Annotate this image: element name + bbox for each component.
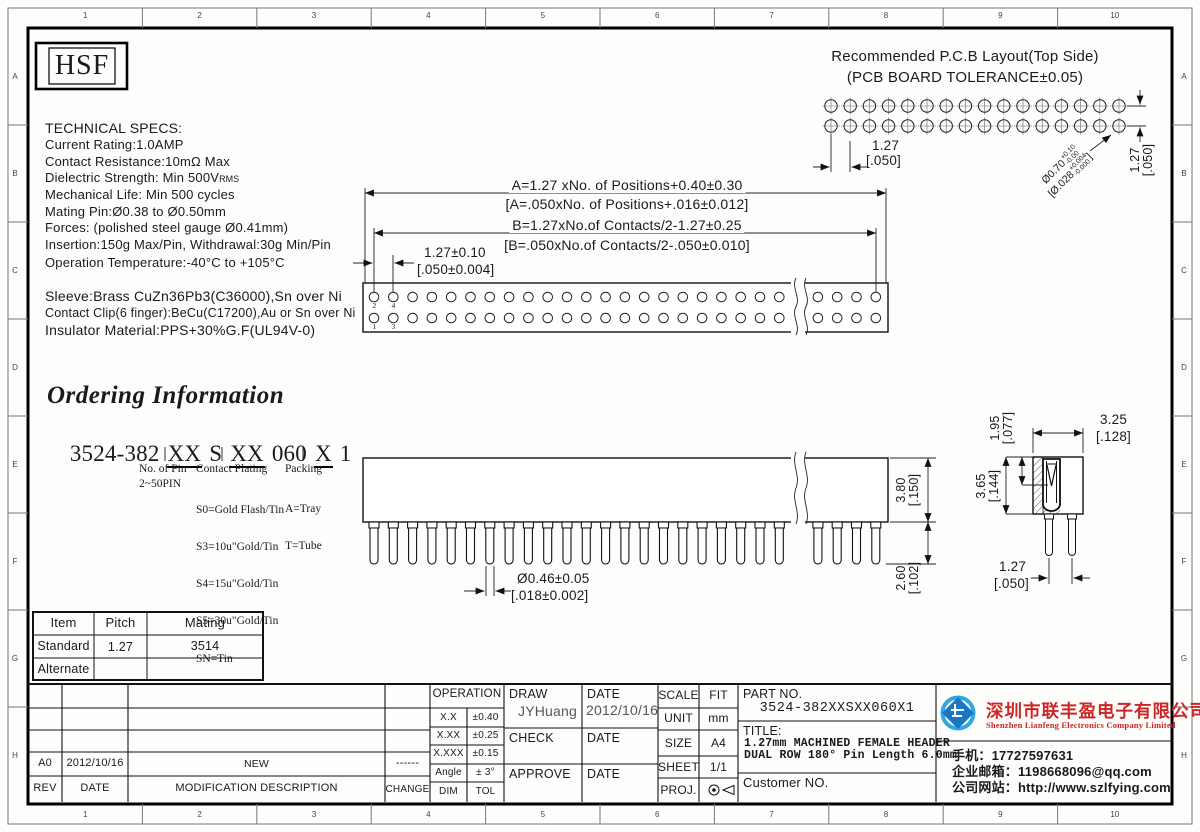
dim-body-width-mm: 3.25 — [1100, 412, 1127, 428]
dim-formula-a-mm: A=1.27 xNo. of Positions+0.40±0.30 — [509, 177, 746, 193]
mating-cell: Alternate — [33, 662, 94, 676]
company-name-en: Shenzhen Lianfeng Electronics Company Li… — [986, 721, 1176, 731]
tol-footer-dim: DIM — [430, 786, 467, 798]
spec-line: Current Rating:1.0AMP — [45, 138, 184, 153]
zone-label: 8 — [881, 810, 891, 819]
dim-pin-dia-in: [.018±0.002] — [511, 588, 588, 604]
zone-label: 6 — [652, 810, 662, 819]
draw-date: 2012/10/16 — [586, 702, 658, 718]
tol-dim: Angle — [430, 767, 467, 779]
zone-label: F — [10, 557, 20, 566]
top-view-break — [791, 278, 807, 335]
draw-name: JYHuang — [518, 703, 577, 719]
rev-entry-date: 2012/10/16 — [62, 757, 128, 770]
pcb-layout-subtitle: (PCB BOARD TOLERANCE±0.05) — [795, 69, 1135, 86]
mating-header-item: Item — [33, 616, 94, 631]
company-logo-icon — [942, 697, 974, 729]
scale-value: FIT — [699, 689, 738, 703]
zone-label: 7 — [767, 11, 777, 20]
sheet-value: 1/1 — [699, 761, 738, 775]
dim-formula-b-mm: B=1.27xNo.of Contacts/2-1.27±0.25 — [509, 217, 744, 233]
spec-line: Mating Pin:Ø0.38 to Ø0.50mm — [45, 205, 226, 220]
zone-label: B — [1179, 169, 1189, 178]
spec-line: Forces: (polished steel gauge Ø0.41mm) — [45, 221, 288, 236]
dim-pitch-mm: 1.27±0.10 — [424, 245, 486, 261]
ordering-pin-range: 2~50PIN — [139, 478, 181, 490]
dim-body-height: 3.80[.150] — [895, 464, 921, 516]
dim-pitch-in: [.050±0.004] — [417, 262, 494, 278]
zone-label: C — [1179, 266, 1189, 275]
part-no-value: 3524-382XXSXX060X1 — [738, 701, 936, 717]
rev-header: CHANGE — [385, 784, 430, 796]
check-label: CHECK — [509, 731, 554, 745]
zone-label: B — [10, 169, 20, 178]
tol-footer-tol: TOL — [467, 786, 504, 798]
zone-label: E — [10, 460, 20, 469]
spec-line: Contact Resistance:10mΩ Max — [45, 155, 230, 170]
mating-header-mating: Mating — [147, 616, 263, 631]
dim-formula-a-in: [A=.050xNo. of Positions+.016±0.012] — [503, 196, 752, 212]
zone-label: 6 — [652, 11, 662, 20]
zone-label: 10 — [1110, 810, 1120, 819]
front-view-break — [791, 452, 807, 524]
zone-label: 1 — [80, 810, 90, 819]
part-title-line2: DUAL ROW 180° Pin Length 6.0mm — [744, 749, 957, 762]
dim-insulator-height: 3.65[.144] — [975, 461, 1001, 511]
plating-option: SN=Tin — [196, 653, 284, 665]
size-label: SIZE — [658, 737, 699, 751]
front-view-pins — [369, 522, 881, 564]
pin-number: 3 — [390, 323, 397, 332]
pcb-pitch-mm: 1.27 — [872, 138, 899, 154]
zone-label: H — [1179, 751, 1189, 760]
mating-header-pitch: Pitch — [94, 616, 147, 631]
pcb-layout-title: Recommended P.C.B Layout(Top Side) — [795, 48, 1135, 65]
customer-no-label: Customer NO. — [743, 776, 828, 791]
zone-label: 3 — [309, 810, 319, 819]
tol-dim: X.X — [430, 712, 467, 724]
pcb-pitch-in: [.050] — [866, 153, 901, 169]
tol-val: ±0.40 — [467, 712, 504, 724]
material-line: Insulator Material:PPS+30%G.F(UL94V-0) — [45, 322, 315, 338]
sheet-label: SHEET — [658, 761, 699, 775]
spec-line: Insertion:150g Max/Pin, Withdrawal:30g M… — [45, 238, 331, 253]
drawing-sheet: HSF TECHNICAL SPECS: Current Rating:1.0A… — [0, 0, 1200, 832]
spec-line: Operation Temperature:-40°C to +105°C — [45, 256, 285, 271]
packing-option: T=Tube — [285, 540, 322, 552]
scale-label: SCALE — [658, 689, 699, 703]
mating-cell: Standard — [33, 639, 94, 653]
dim-pin-length: 2.60[.102] — [895, 552, 921, 604]
spec-line: Dielectric Strength: Min 500VRMS — [45, 171, 239, 186]
proj-label: PROJ. — [658, 784, 699, 798]
zone-label: D — [10, 363, 20, 372]
zone-label: G — [10, 654, 20, 663]
packing-option: A=Tray — [285, 503, 322, 515]
zone-label: G — [1179, 654, 1189, 663]
unit-label: UNIT — [658, 712, 699, 726]
zone-label: 2 — [195, 810, 205, 819]
date-label: DATE — [587, 767, 620, 781]
material-line: Sleeve:Brass CuZn36Pb3(C36000),Sn over N… — [45, 288, 342, 304]
mating-cell: 3514 — [147, 639, 263, 653]
zone-label: 2 — [195, 11, 205, 20]
ordering-packing-title: Packing — [285, 463, 322, 475]
specs-title: TECHNICAL SPECS: — [45, 120, 182, 136]
section-view — [1033, 457, 1083, 556]
ordering-title: Ordering Information — [47, 382, 284, 411]
dim-contact-depth: 1.95[.077] — [989, 403, 1015, 453]
tol-val: ± 3° — [467, 767, 504, 779]
tol-val: ±0.25 — [467, 730, 504, 742]
zone-label: 4 — [423, 810, 433, 819]
ordering-plating-options: S0=Gold Flash/Tin S3=10u"Gold/Tin S4=15u… — [196, 479, 284, 690]
dim-sec-pitch-in: [.050] — [994, 576, 1029, 592]
rev-header: DATE — [62, 782, 128, 795]
zone-label: 7 — [767, 810, 777, 819]
dim-body-width-in: [.128] — [1096, 429, 1131, 445]
plating-option: S4=15u"Gold/Tin — [196, 578, 284, 590]
mating-cell: 1.27 — [94, 640, 147, 654]
pcb-hole-pattern — [822, 98, 1128, 135]
zone-label: C — [10, 266, 20, 275]
company-email: 企业邮箱：1198668096@qq.com — [952, 765, 1152, 780]
pcb-row-pitch-dim: 1.27[.050] — [1129, 137, 1155, 183]
company-phone: 手机：17727597631 — [952, 749, 1073, 764]
dim-formula-b-in: [B=.050xNo.of Contacts/2-.050±0.010] — [501, 237, 753, 253]
draw-label: DRAW — [509, 687, 548, 701]
pin-number: 2 — [371, 302, 378, 311]
tol-dim: X.XXX — [430, 748, 467, 760]
hsf-logo-text: HSF — [49, 48, 115, 84]
front-view-body — [363, 458, 888, 522]
pin-number: 1 — [371, 323, 378, 332]
zone-label: 8 — [881, 11, 891, 20]
zone-label: 9 — [995, 11, 1005, 20]
material-line: Contact Clip(6 finger):BeCu(C17200),Au o… — [45, 306, 356, 320]
approve-label: APPROVE — [509, 767, 571, 781]
part-no-label: PART NO. — [743, 687, 802, 701]
zone-label: 5 — [538, 11, 548, 20]
projection-symbol-icon — [709, 785, 734, 795]
zone-label: 5 — [538, 810, 548, 819]
zone-label: 4 — [423, 11, 433, 20]
plating-option: S0=Gold Flash/Tin — [196, 504, 284, 516]
zone-label: E — [1179, 460, 1189, 469]
unit-value: mm — [699, 712, 738, 726]
zone-label: A — [1179, 72, 1189, 81]
rev-entry-desc: NEW — [128, 758, 385, 770]
rev-header: REV — [28, 782, 62, 795]
date-label: DATE — [587, 687, 620, 701]
dim-pin-dia-mm: Ø0.46±0.05 — [517, 571, 589, 587]
rev-entry-rev: A0 — [28, 757, 62, 770]
size-value: A4 — [699, 737, 738, 751]
rev-header: MODIFICATION DESCRIPTION — [128, 782, 385, 795]
zone-label: D — [1179, 363, 1189, 372]
top-view-body — [363, 283, 888, 332]
tol-dim: X.XX — [430, 730, 467, 742]
company-name-cn: 深圳市联丰盈电子有限公司 — [986, 701, 1200, 721]
company-website: 公司网站：http://www.szlfying.com — [952, 781, 1171, 796]
ordering-plating-title: Contact Plating — [196, 463, 267, 475]
dim-sec-pitch-mm: 1.27 — [999, 559, 1026, 575]
ordering-packing-options: A=Tray T=Tube — [285, 478, 322, 577]
date-label: DATE — [587, 731, 620, 745]
zone-label: 10 — [1110, 11, 1120, 20]
ordering-pin-title: No. of Pin — [139, 463, 187, 475]
spec-line: Mechanical Life: Min 500 cycles — [45, 188, 235, 203]
zone-label: 9 — [995, 810, 1005, 819]
zone-label: 3 — [309, 11, 319, 20]
zone-label: F — [1179, 557, 1189, 566]
tol-val: ±0.15 — [467, 748, 504, 760]
rev-entry-change: ------ — [385, 757, 430, 770]
plating-option: S3=10u"Gold/Tin — [196, 541, 284, 553]
zone-label: A — [10, 72, 20, 81]
operation-header: OPERATION — [430, 688, 504, 701]
zone-label: 1 — [80, 11, 90, 20]
pin-number: 4 — [390, 302, 397, 311]
zone-label: H — [10, 751, 20, 760]
